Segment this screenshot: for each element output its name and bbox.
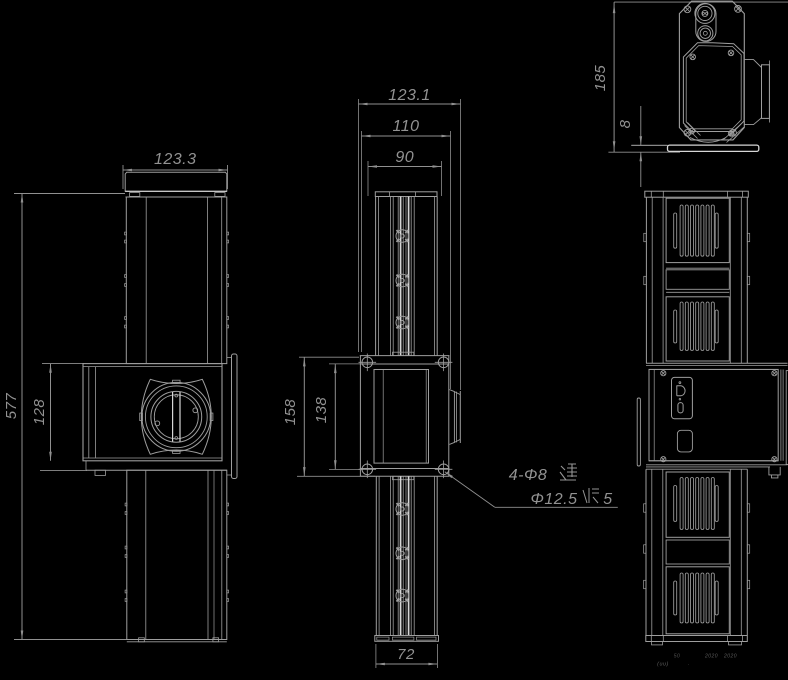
svg-text:185: 185 — [592, 65, 609, 92]
svg-text:110: 110 — [392, 118, 419, 135]
svg-text:158: 158 — [282, 399, 299, 426]
svg-text:123.3: 123.3 — [154, 151, 197, 168]
svg-text:2020: 2020 — [704, 654, 718, 660]
svg-text:50: 50 — [674, 654, 681, 660]
svg-text:123.1: 123.1 — [388, 87, 431, 104]
svg-text:8: 8 — [617, 119, 634, 128]
svg-text:90: 90 — [395, 149, 414, 166]
svg-text:577: 577 — [3, 393, 20, 420]
svg-text:5: 5 — [603, 491, 612, 508]
svg-text:72: 72 — [397, 646, 415, 663]
svg-text:(ʋʋ): (ʋʋ) — [657, 662, 669, 668]
svg-text:2020: 2020 — [723, 654, 737, 660]
svg-text:Φ12.5: Φ12.5 — [530, 491, 577, 508]
svg-text:.: . — [688, 661, 690, 667]
svg-text:138: 138 — [313, 397, 330, 424]
svg-text:128: 128 — [31, 399, 48, 426]
svg-text:4-Φ8: 4-Φ8 — [509, 467, 548, 484]
